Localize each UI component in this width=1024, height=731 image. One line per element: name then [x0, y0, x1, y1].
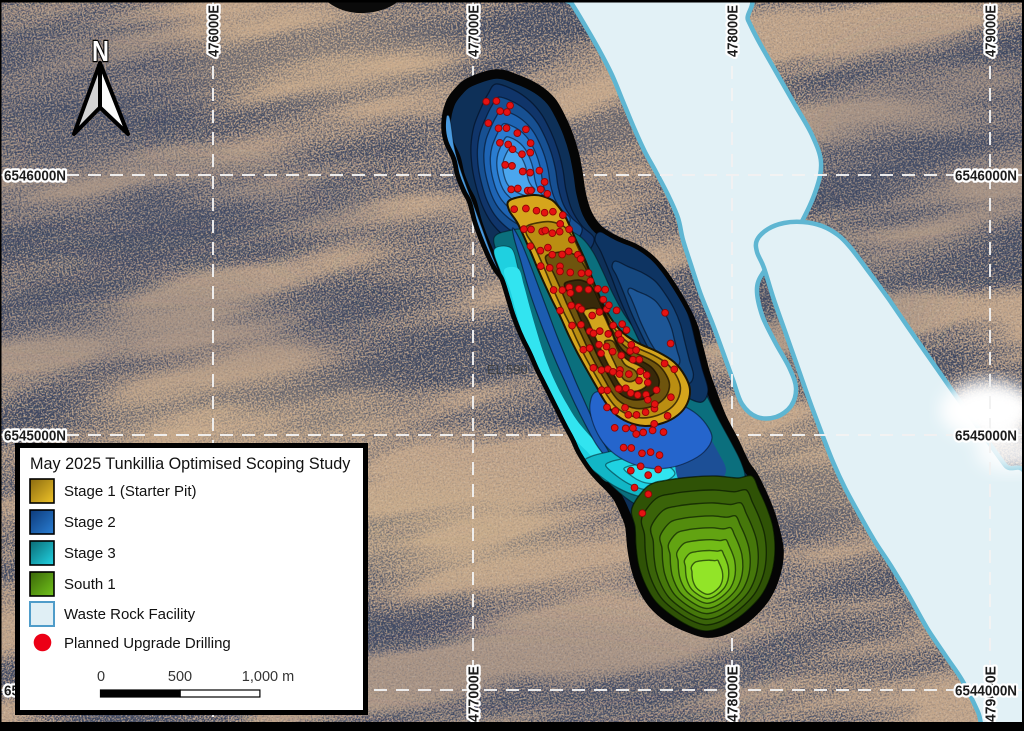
svg-text:477000E: 477000E	[467, 5, 483, 57]
svg-text:476000E: 476000E	[207, 5, 223, 57]
svg-text:478000E: 478000E	[726, 666, 742, 722]
svg-text:6545000N: 6545000N	[955, 429, 1017, 445]
svg-text:South 1: South 1	[64, 576, 116, 593]
svg-text:477000E: 477000E	[467, 666, 483, 722]
svg-text:6546000N: 6546000N	[4, 169, 66, 185]
svg-text:0: 0	[97, 669, 105, 685]
svg-text:Stage 1 (Starter Pit): Stage 1 (Starter Pit)	[64, 483, 197, 500]
svg-text:6545000N: 6545000N	[4, 429, 66, 445]
svg-text:1,000 m: 1,000 m	[242, 669, 294, 685]
svg-text:500: 500	[168, 669, 192, 685]
svg-text:May 2025 Tunkillia Optimised S: May 2025 Tunkillia Optimised Scoping Stu…	[30, 455, 351, 473]
svg-text:478000E: 478000E	[726, 5, 742, 57]
svg-text:Waste Rock Facility: Waste Rock Facility	[64, 606, 196, 623]
svg-text:6544000N: 6544000N	[955, 684, 1017, 700]
svg-text:Planned Upgrade Drilling: Planned Upgrade Drilling	[64, 635, 231, 652]
svg-text:479000E: 479000E	[984, 5, 1000, 57]
svg-text:EL 590: EL 590	[487, 362, 528, 377]
svg-text:6546000N: 6546000N	[955, 169, 1017, 185]
svg-text:Stage 3: Stage 3	[64, 545, 116, 562]
svg-text:Stage 2: Stage 2	[64, 514, 116, 531]
